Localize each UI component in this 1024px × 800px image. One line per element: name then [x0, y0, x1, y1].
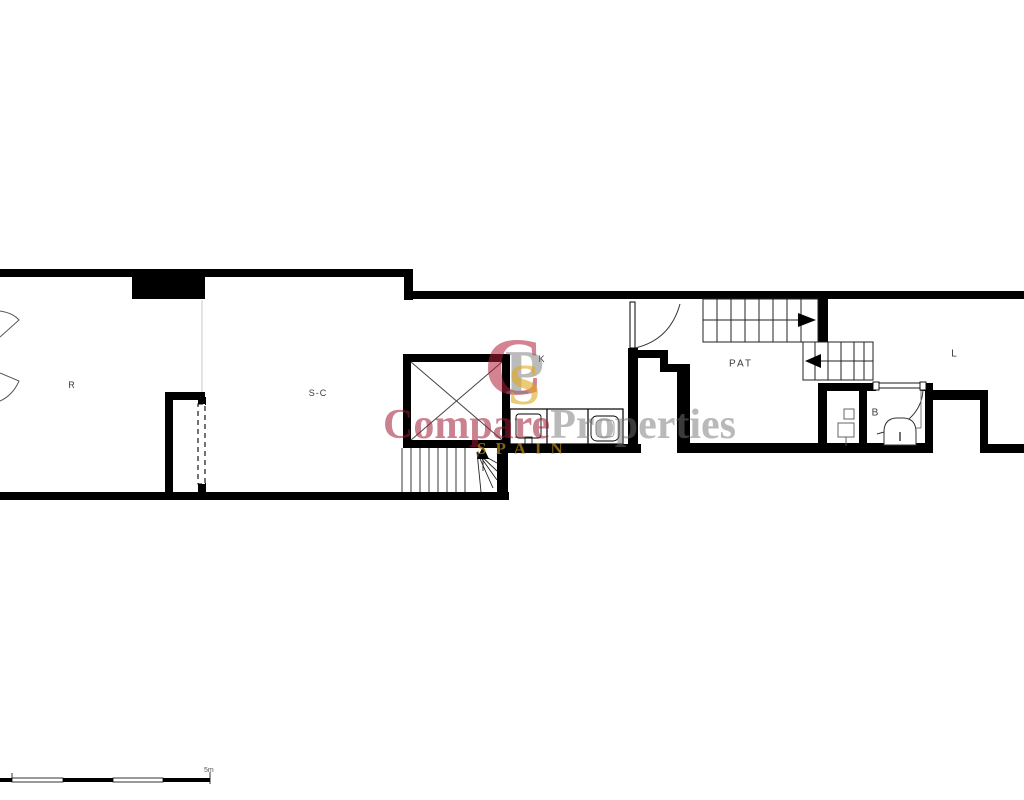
- wall-partition-r-sc: [165, 392, 173, 496]
- stair-arrow-right: [798, 313, 816, 327]
- wall-top-left: [0, 269, 412, 277]
- door-kitchen-pat: [630, 302, 680, 348]
- door-swing-arc: [0, 373, 19, 401]
- room-label-l: L: [951, 349, 959, 360]
- wall-pillar: [132, 277, 205, 299]
- wall-bottom-left: [0, 492, 509, 500]
- bidet-symbol: [838, 423, 854, 437]
- room-label-k: K: [538, 354, 545, 364]
- wall-stair-divider: [818, 291, 828, 342]
- winder-stairs: [402, 446, 497, 492]
- kitchen-counter: [510, 409, 623, 444]
- wall-bath-divider: [859, 388, 867, 448]
- room-label-sc: S-C: [309, 388, 328, 398]
- door-leaf: [630, 302, 635, 348]
- wall-notch-top: [925, 390, 988, 400]
- wall-top-right: [404, 291, 1024, 299]
- wall-notch-right: [980, 390, 988, 453]
- room-label-r: R: [68, 380, 76, 390]
- room-label-b: B: [872, 408, 881, 419]
- door-swing-arc: [0, 311, 19, 337]
- wall-bath-left: [818, 383, 827, 453]
- scale-label: 5m: [204, 767, 214, 774]
- bathroom: [838, 382, 926, 446]
- lower-stairs: [803, 342, 873, 380]
- wall-pat-left: [677, 364, 690, 453]
- bath-door-leaf: [876, 383, 923, 388]
- kitchen-cooktop-inner: [596, 420, 614, 437]
- wall-kitchen-bottom: [497, 444, 641, 453]
- kitchen-sink: [516, 414, 541, 438]
- floor-plan-page: 5m R S-C K PAT B L C P S CompareProperti…: [0, 0, 1024, 800]
- sink-symbol: [844, 409, 854, 419]
- bath-door-hinge: [920, 382, 926, 390]
- walls: [0, 269, 1024, 500]
- elevator-shaft: [403, 354, 510, 448]
- floor-plan-drawing: 5m: [0, 0, 1024, 800]
- entrance-door-arcs: [0, 311, 19, 401]
- scale-bar: 5m: [0, 767, 214, 784]
- bath-door-hinge: [873, 382, 879, 390]
- room-label-pat: PAT: [729, 359, 753, 370]
- wall-bottom-right: [980, 444, 1024, 453]
- upper-stairs: [703, 299, 818, 342]
- wall-kitchen-right: [628, 348, 638, 453]
- dashed-door: [198, 404, 205, 484]
- door-swing-arc: [635, 304, 680, 348]
- stair-arrow-left: [805, 354, 821, 368]
